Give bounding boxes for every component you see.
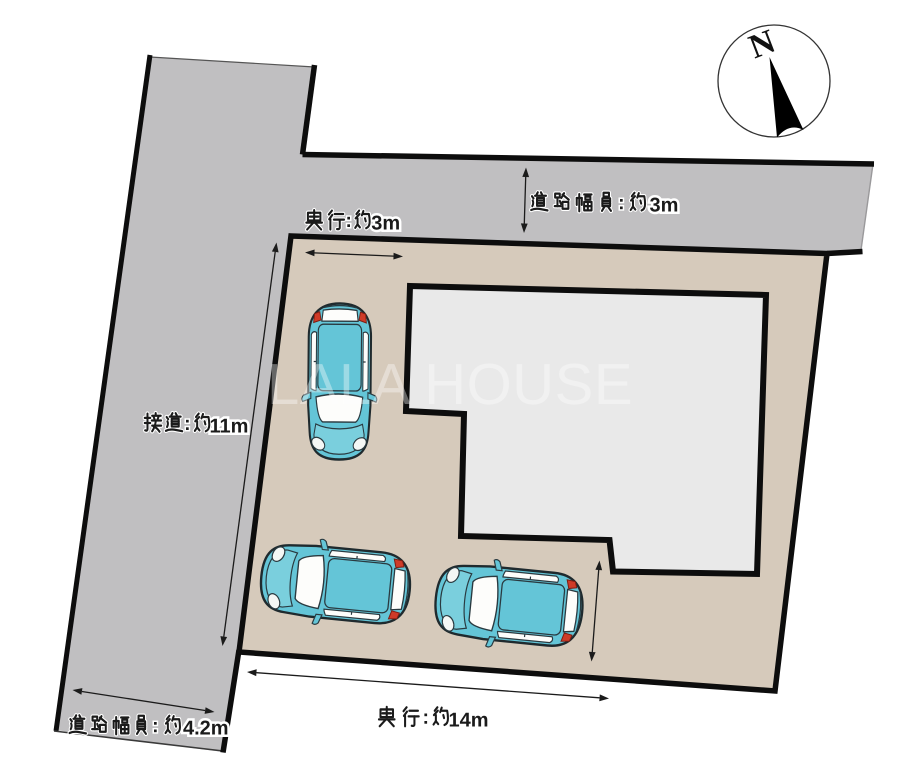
svg-text:4.2m: 4.2m (183, 718, 229, 740)
svg-text:3m: 3m (371, 213, 400, 235)
svg-text:LALA HOUSE: LALA HOUSE (267, 352, 633, 417)
svg-text:14m: 14m (449, 710, 489, 732)
svg-text:3m: 3m (650, 195, 679, 217)
svg-text:11m: 11m (210, 416, 249, 438)
